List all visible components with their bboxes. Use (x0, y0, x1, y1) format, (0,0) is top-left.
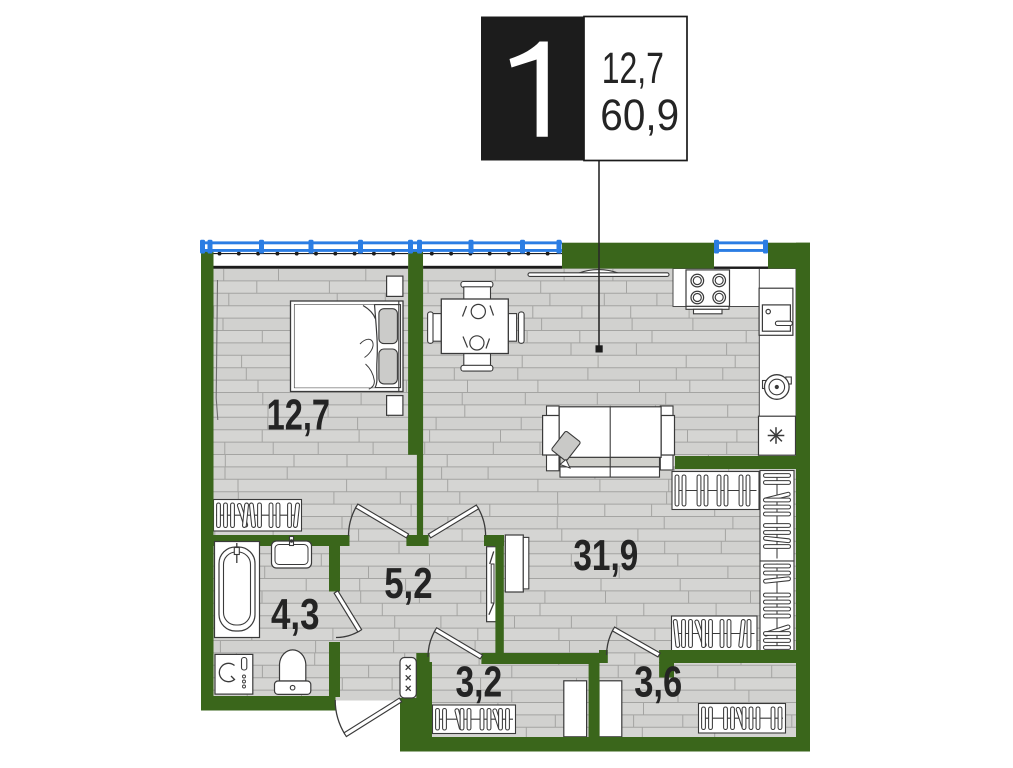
svg-text:12,7: 12,7 (267, 392, 330, 440)
svg-text:12,7: 12,7 (602, 44, 664, 93)
svg-text:3,2: 3,2 (456, 659, 503, 707)
svg-text:3,6: 3,6 (634, 659, 682, 707)
svg-text:5,2: 5,2 (384, 560, 432, 608)
svg-text:4,3: 4,3 (271, 591, 320, 639)
svg-text:60,9: 60,9 (600, 91, 679, 140)
svg-text:31,9: 31,9 (573, 532, 638, 580)
